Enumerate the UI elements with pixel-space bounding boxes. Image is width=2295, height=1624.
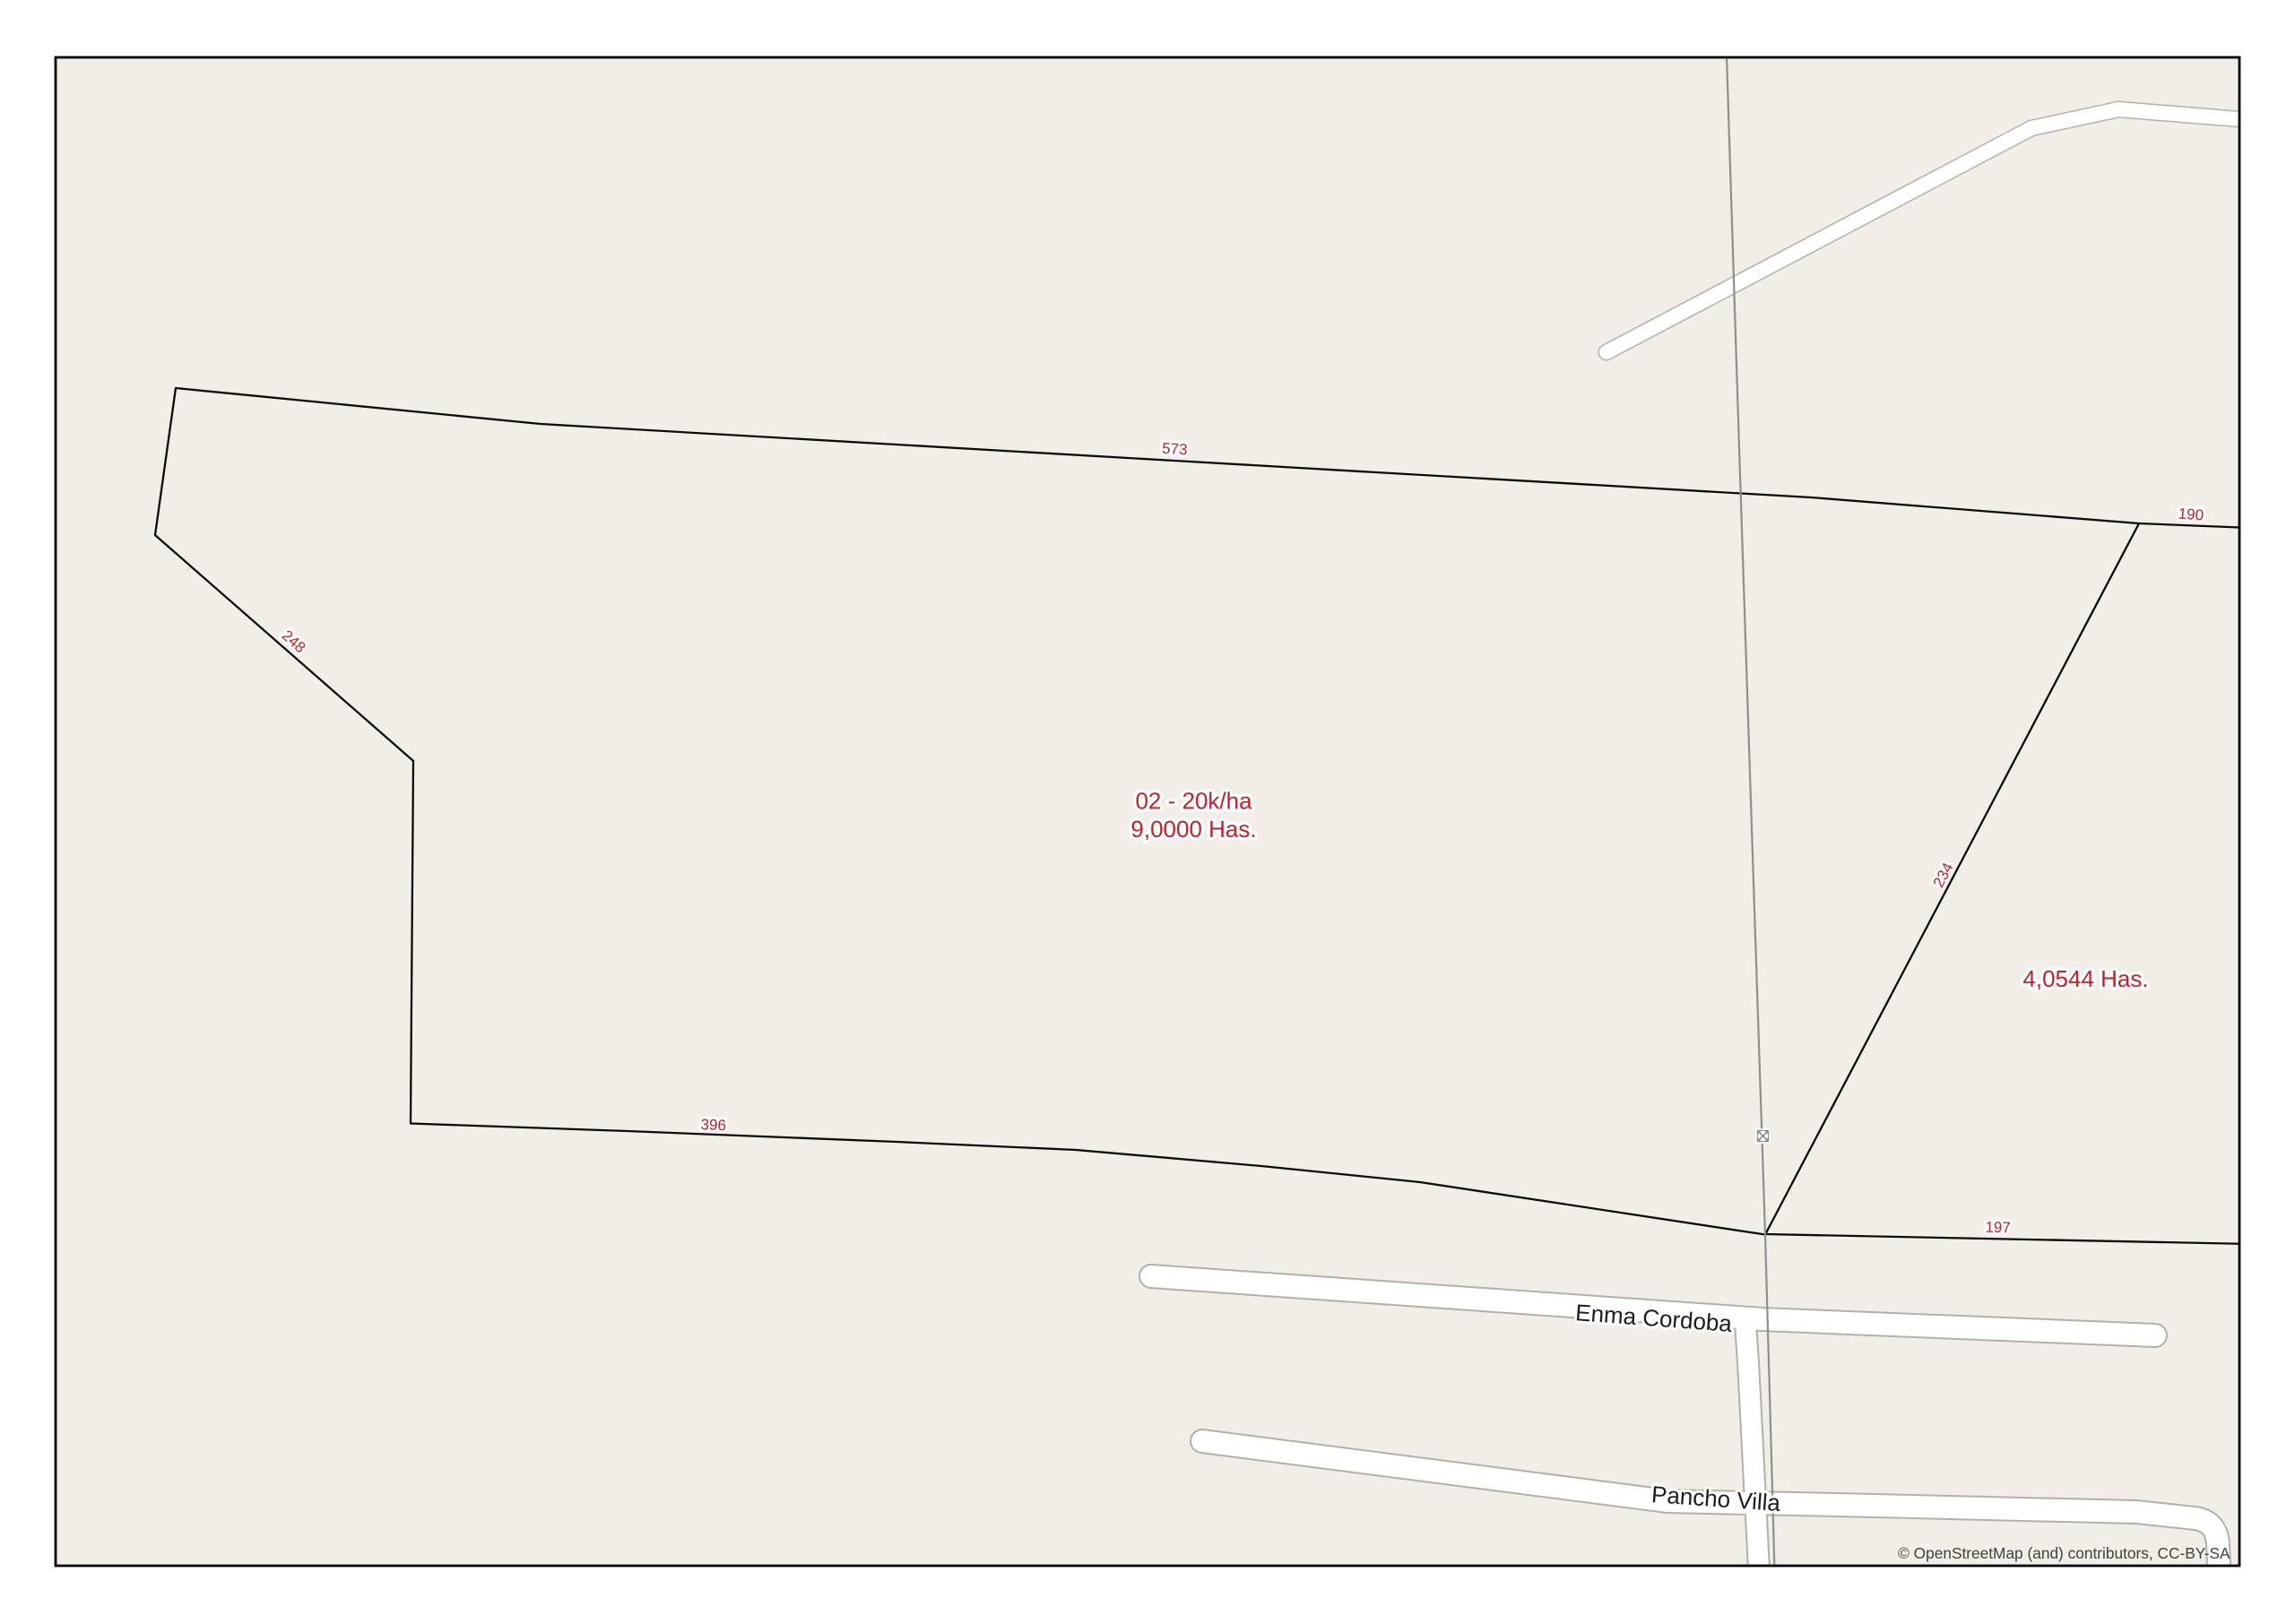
svg-text:573: 573: [1162, 440, 1188, 459]
svg-text:190: 190: [2178, 505, 2204, 524]
svg-text:197: 197: [1985, 1219, 2011, 1237]
svg-text:4,0544 Has.: 4,0544 Has.: [2022, 965, 2148, 992]
svg-text:02 - 20k/ha: 02 - 20k/ha: [1135, 788, 1252, 815]
svg-text:9,0000 Has.: 9,0000 Has.: [1130, 816, 1256, 842]
svg-text:© OpenStreetMap (and) contribu: © OpenStreetMap (and) contributors, CC-B…: [1898, 1544, 2230, 1562]
svg-text:396: 396: [700, 1116, 726, 1134]
